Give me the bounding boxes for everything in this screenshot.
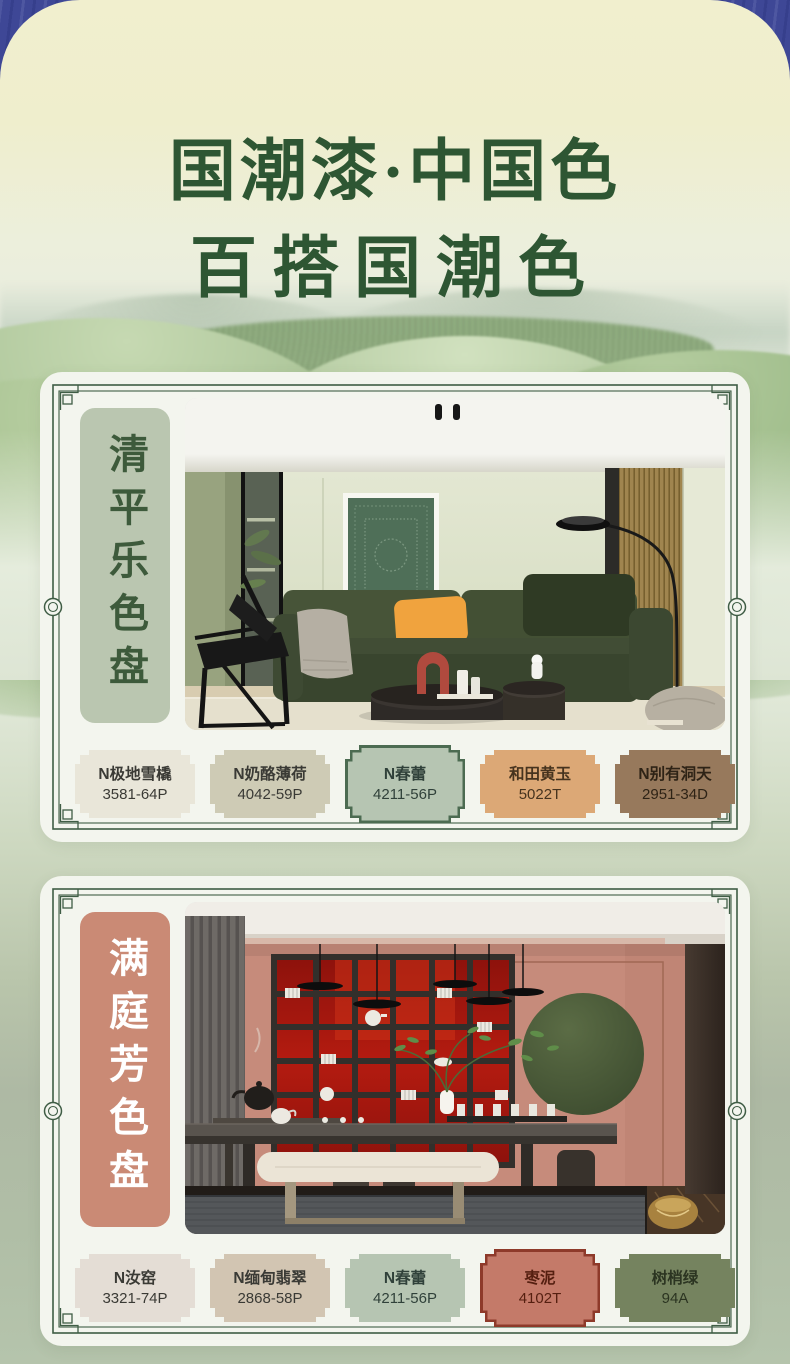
color-swatch: N汝窑3321-74P: [75, 1254, 195, 1322]
swatch-code: 3321-74P: [102, 1289, 167, 1309]
color-swatch-highlighted: N春蕾4211-56P: [345, 745, 465, 823]
title-line-1: 国潮漆·中国色: [0, 124, 790, 221]
swatch-row: N汝窑3321-74P N缅甸翡翠2868-58P N春蕾4211-56P 枣泥…: [75, 1248, 735, 1328]
swatch-code: 4211-56P: [373, 1289, 437, 1309]
swatch-code: 3581-64P: [98, 785, 171, 805]
palette-card-qingpingle: 清平乐色盘: [40, 372, 750, 842]
swatch-name: N春蕾: [373, 1268, 437, 1289]
color-swatch: N缅甸翡翠2868-58P: [210, 1254, 330, 1322]
color-swatch: 和田黄玉5022T: [480, 750, 600, 818]
swatch-code: 5022T: [509, 785, 571, 805]
palette-title-vertical: 清平乐色盘: [80, 408, 170, 723]
color-swatch-highlighted: 枣泥4102T: [480, 1249, 600, 1327]
swatch-name: N缅甸翡翠: [233, 1268, 306, 1289]
swatch-code: 4211-56P: [373, 785, 437, 805]
swatch-code: 2868-58P: [233, 1289, 306, 1309]
palette-title-vertical: 满庭芳色盘: [80, 912, 170, 1227]
swatch-name: N汝窑: [102, 1268, 167, 1289]
swatch-name: 枣泥: [519, 1268, 562, 1289]
swatch-name: N春蕾: [373, 764, 437, 785]
swatch-code: 4042-59P: [233, 785, 306, 805]
color-swatch: 树梢绿94A: [615, 1254, 735, 1322]
swatch-name: 树梢绿: [652, 1268, 699, 1289]
swatch-name: N极地雪橇: [98, 764, 171, 785]
color-swatch: N春蕾4211-56P: [345, 1254, 465, 1322]
swatch-code: 4102T: [519, 1289, 562, 1309]
swatch-code: 94A: [652, 1289, 699, 1309]
page-title: 国潮漆·中国色 百搭国潮色: [0, 124, 790, 318]
swatch-name: 和田黄玉: [509, 764, 571, 785]
swatch-row: N极地雪橇3581-64P N奶酪薄荷4042-59P N春蕾4211-56P …: [75, 744, 735, 824]
palette-card-mantingfang: 满庭芳色盘: [40, 876, 750, 1346]
color-swatch: N别有洞天2951-34D: [615, 750, 735, 818]
color-swatch: N奶酪薄荷4042-59P: [210, 750, 330, 818]
color-swatch: N极地雪橇3581-64P: [75, 750, 195, 818]
swatch-code: 2951-34D: [638, 785, 711, 805]
promo-poster: 国潮漆·中国色 百搭国潮色: [0, 0, 790, 1364]
poster-sheet: 国潮漆·中国色 百搭国潮色: [0, 0, 790, 1364]
swatch-name: N别有洞天: [638, 764, 711, 785]
swatch-name: N奶酪薄荷: [233, 764, 306, 785]
living-room-scene-photo: [185, 398, 725, 730]
tea-room-scene-photo: [185, 902, 725, 1234]
title-line-2: 百搭国潮色: [0, 221, 790, 318]
